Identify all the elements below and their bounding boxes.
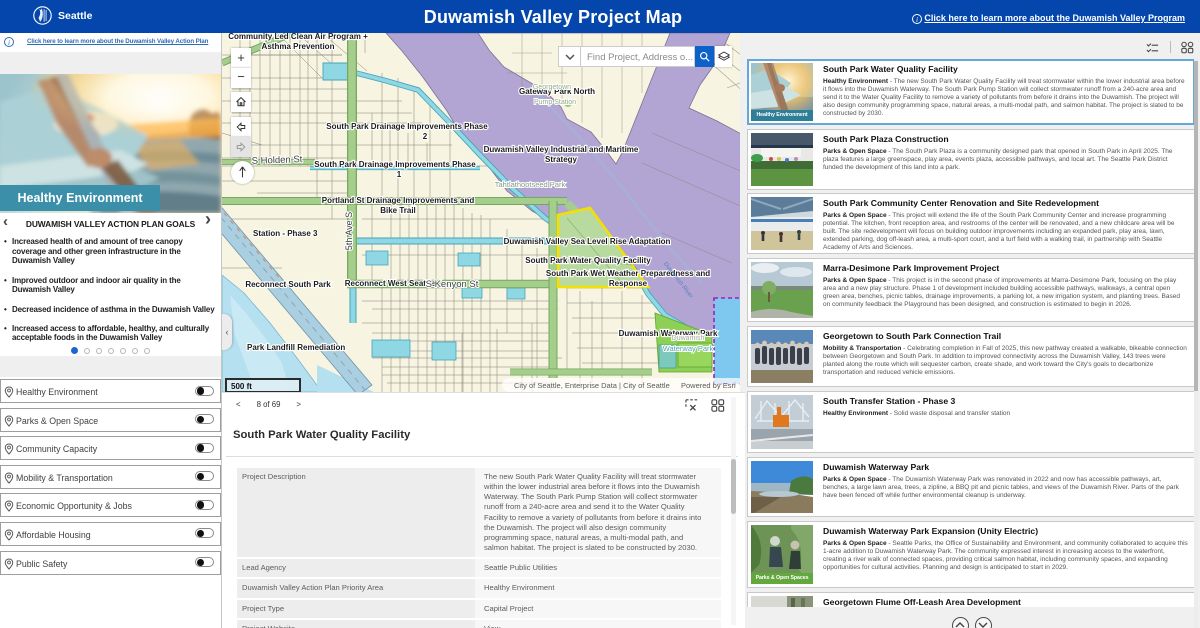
svg-text:Station - Phase 3: Station - Phase 3 — [253, 229, 318, 238]
svg-text:Reconnect South Park: Reconnect South Park — [245, 280, 331, 289]
svg-text:Duwamish: Duwamish — [672, 335, 705, 342]
svg-text:South Park Drainage Improvemen: South Park Drainage Improvements Phase — [314, 160, 476, 169]
svg-text:Bike Trail: Bike Trail — [380, 206, 416, 215]
svg-text:Portland St Drainage Improveme: Portland St Drainage Improvements and — [322, 196, 475, 205]
svg-text:Powered by Esri: Powered by Esri — [681, 381, 736, 390]
svg-text:Park Landfill Remediation: Park Landfill Remediation — [247, 343, 345, 352]
svg-text:Strategy: Strategy — [545, 155, 578, 164]
svg-text:Response: Response — [609, 279, 648, 288]
svg-text:Pump Station: Pump Station — [534, 99, 576, 106]
svg-text:South Park Water Quality Facil: South Park Water Quality Facility — [525, 256, 651, 265]
svg-text:S Holden St: S Holden St — [251, 154, 302, 167]
svg-text:Waterway Park: Waterway Park — [663, 344, 714, 353]
svg-text:South Park Drainage Improvemen: South Park Drainage Improvements Phase — [326, 122, 488, 131]
svg-text:2: 2 — [423, 132, 428, 141]
svg-text:Reconnect West Seattle: Reconnect West Seattle — [345, 279, 436, 288]
svg-text:Tahtlathootseed Park: Tahtlathootseed Park — [495, 180, 566, 189]
svg-text:Duwamish Valley Sea Level Rise: Duwamish Valley Sea Level Rise Adaptatio… — [504, 237, 671, 246]
svg-text:Asthma Prevention: Asthma Prevention — [262, 42, 335, 51]
svg-text:Georgetown: Georgetown — [533, 84, 571, 91]
svg-text:City of Seattle, Enterprise Da: City of Seattle, Enterprise Data | City … — [514, 381, 670, 390]
svg-text:S Kenyon St: S Kenyon St — [426, 279, 479, 290]
svg-text:Community Led Clean Air Progra: Community Led Clean Air Program + — [228, 33, 368, 41]
svg-text:Duwamish Valley Industrial and: Duwamish Valley Industrial and Maritime — [484, 145, 639, 154]
svg-text:5th Ave S: 5th Ave S — [344, 212, 354, 250]
svg-text:1: 1 — [397, 170, 402, 179]
svg-text:500 ft: 500 ft — [231, 382, 252, 391]
svg-text:South Park Wet Weather Prepare: South Park Wet Weather Preparedness and — [546, 269, 710, 278]
